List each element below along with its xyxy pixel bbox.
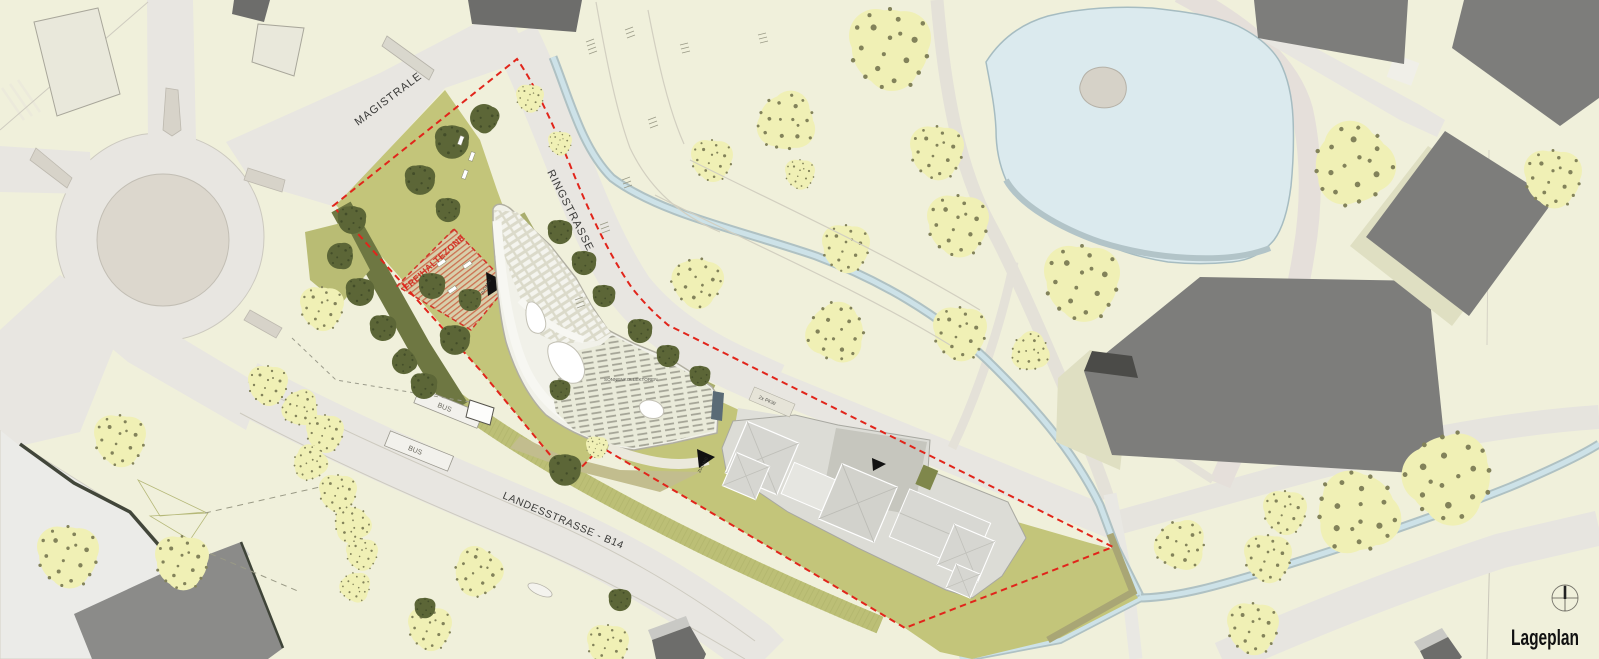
svg-text:SONNENKOLLEKTOREN: SONNENKOLLEKTOREN (604, 377, 658, 382)
svg-text:Lageplan: Lageplan (1511, 625, 1579, 650)
